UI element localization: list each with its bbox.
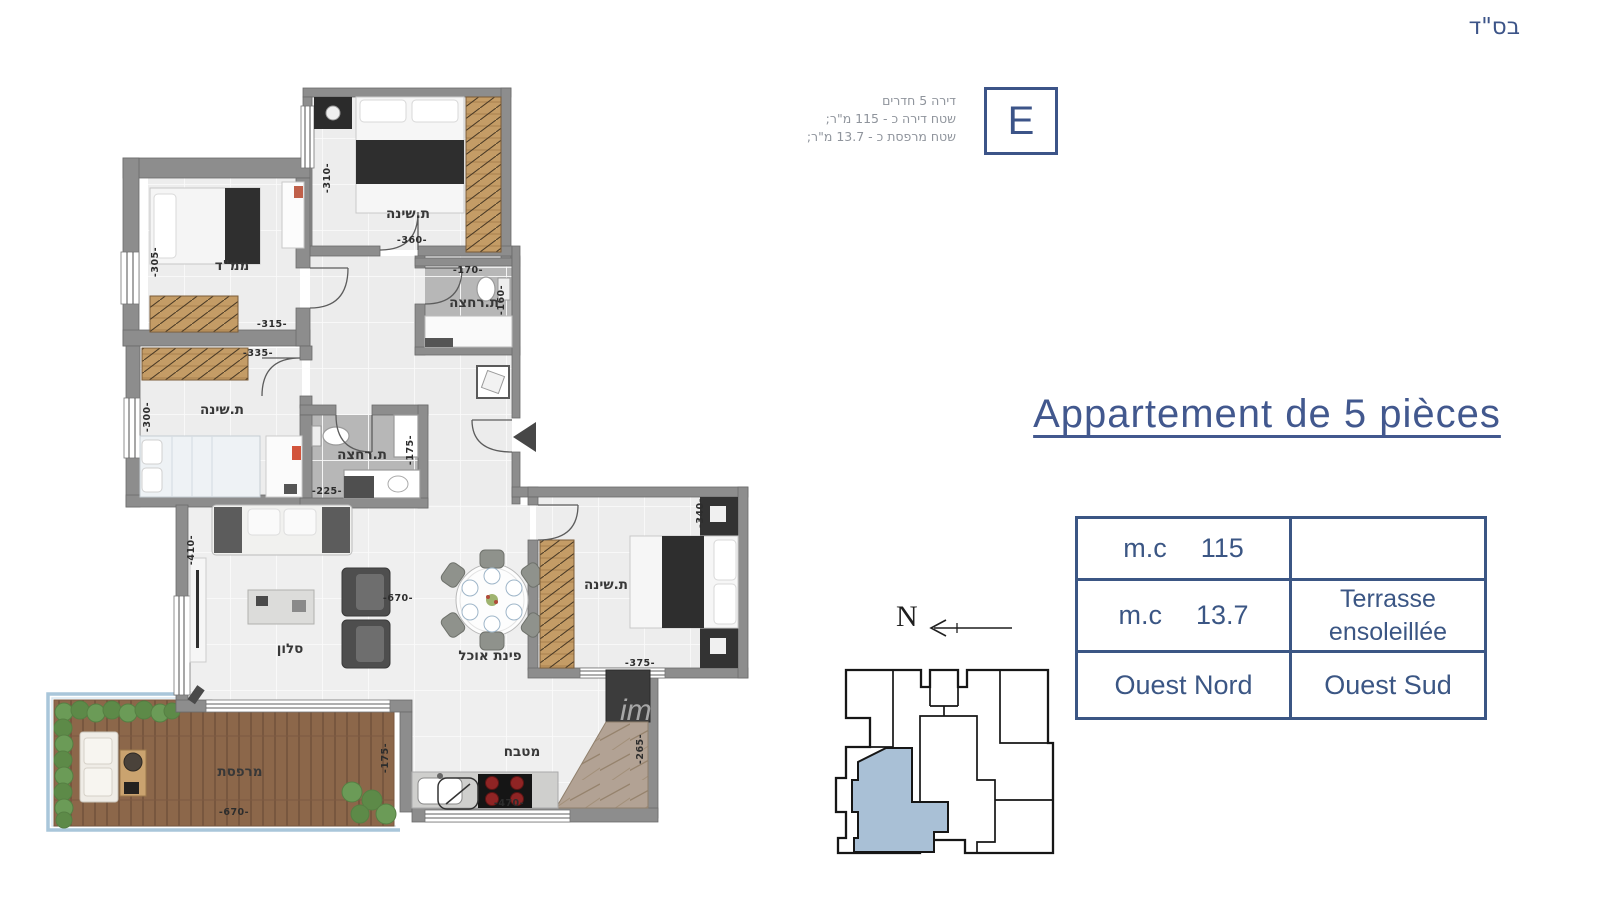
terrace-label: Terrasse ensoleillée [1329,583,1447,648]
area-value: 115 [1201,533,1244,564]
dimension-label: -225- [312,486,342,497]
dimension-label: -170- [453,265,483,276]
room-label: ת.רחצה [449,295,499,311]
room-label: מטבח [504,744,540,760]
area-unit-label: m.c [1123,533,1167,564]
watermark: im [620,694,652,727]
keyplan [818,592,1063,864]
dimension-label: -470- [494,798,524,809]
dimension-label: -175- [405,435,416,465]
dimension-label: -375- [625,658,655,669]
terrace-unit-label: m.c [1118,600,1162,631]
dimension-label: -265- [635,734,646,764]
unit-letter: E [1008,99,1035,144]
room-label: מרפסת [217,764,262,780]
page-title: Appartement de 5 pièces [1008,392,1526,437]
dimension-label: -160- [496,285,507,315]
dimension-label: -410- [186,535,197,565]
dimension-label: -300- [142,402,153,432]
spec-cell-terrace-area: m.c 13.7 [1078,581,1292,653]
dimension-label: -305- [150,247,161,277]
bsd-text: בס"ד [1380,14,1520,40]
north-arrow-icon [931,620,1012,636]
page-canvas: בס"ד דירה 5 חדרים שטח דירה כ - 115 מ"ר; … [0,0,1600,900]
dimension-label: -175- [380,743,391,773]
spec-cell-area: m.c 115 [1078,519,1292,581]
room-label: ת.שינה [584,577,628,593]
dimension-label: -340- [695,498,706,528]
orientation-west-south: Ouest Sud [1324,670,1452,701]
room-label: ת.רחצה [337,447,387,463]
spec-cell-terrace: Terrasse ensoleillée [1292,581,1484,653]
floor-plan: im ת.שינהממ"דת.רחצהת.שינהת.רחצהסלוןפינת … [40,80,800,865]
room-label: ת.שינה [386,206,430,222]
dimension-label: -360- [397,235,427,246]
spec-cell-orientation-1: Ouest Nord [1078,653,1292,717]
dimension-label: -310- [322,163,333,193]
building-keyplan [836,670,1053,853]
room-label: ממ"ד [215,258,250,274]
spec-cell-orientation-2: Ouest Sud [1292,653,1484,717]
dimension-label: -670- [383,593,413,604]
dimension-label: -670- [219,807,249,818]
room-label: ת.שינה [200,402,244,418]
room-label: סלון [277,641,304,657]
terrace-value: 13.7 [1196,600,1249,631]
spec-cell-empty [1292,519,1484,581]
room-label: פינת אוכל [458,648,521,664]
spec-table: m.c 115 m.c 13.7 Terrasse ensoleillée Ou… [1075,516,1487,720]
orientation-west-north: Ouest Nord [1114,670,1252,701]
unit-letter-box: E [984,87,1058,155]
dimension-label: -315- [257,319,287,330]
dimension-label: -335- [243,348,273,359]
